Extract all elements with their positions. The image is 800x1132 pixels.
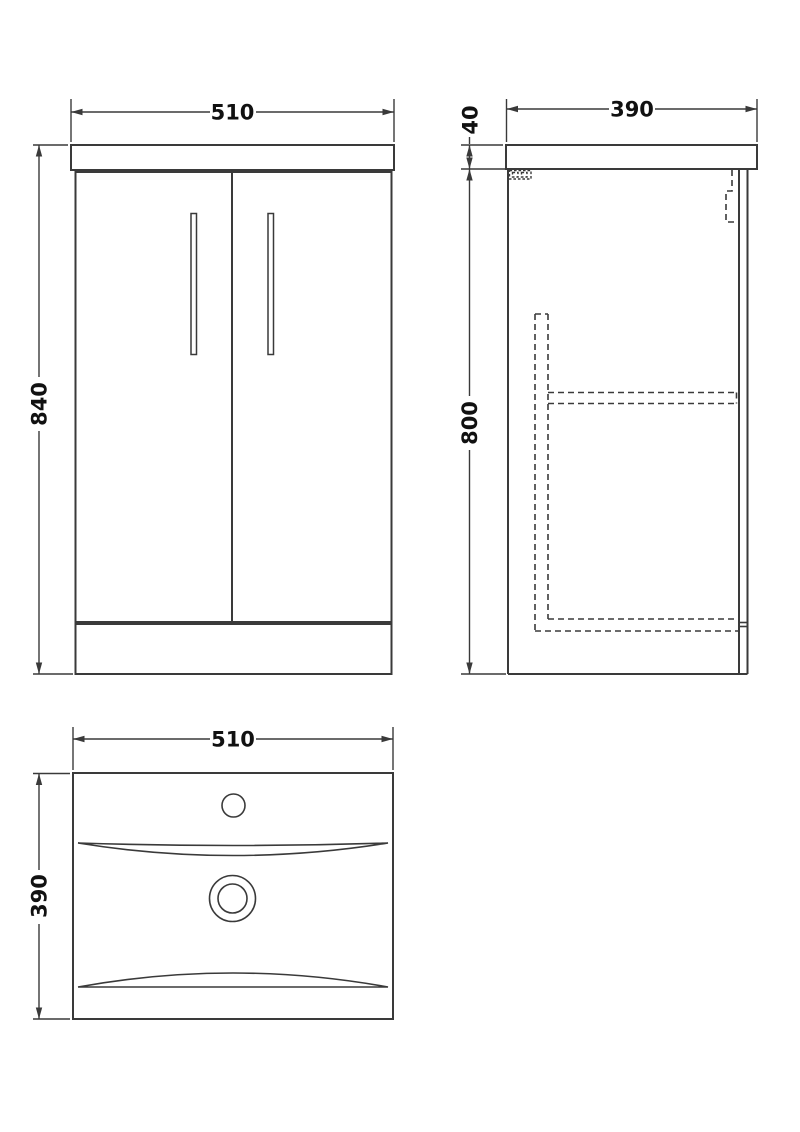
base-panel-dashed — [535, 619, 739, 631]
plan-width-label: 510 — [211, 728, 255, 752]
hinge-plate-detail — [513, 173, 519, 178]
front-right-door-handle — [268, 214, 274, 355]
side-depth-dimension: 390 — [507, 98, 758, 142]
side-view: 390 40 800 — [458, 98, 757, 674]
tap-hole — [222, 794, 245, 817]
plan-depth-dimension: 390 — [28, 774, 70, 1020]
front-view: 510 840 — [28, 99, 394, 674]
side-depth-label: 390 — [610, 98, 654, 122]
basin-front-curve — [78, 973, 388, 987]
basin-back-curve — [78, 843, 388, 856]
plan-depth-label: 390 — [28, 874, 52, 918]
drawing-canvas: 510 840 — [0, 0, 800, 1132]
front-width-dimension: 510 — [71, 99, 394, 142]
front-width-label: 510 — [211, 101, 255, 125]
waste-drain-inner — [218, 884, 247, 913]
side-height-label: 800 — [458, 401, 482, 445]
wall-bracket-dashed — [726, 170, 739, 222]
front-left-door-handle — [191, 214, 197, 355]
plan-width-dimension: 510 — [73, 727, 393, 770]
vanity-technical-drawing: 510 840 — [0, 0, 800, 1132]
side-worktop-label: 40 — [459, 105, 483, 134]
side-worktop — [506, 145, 757, 169]
waste-drain-outer — [210, 876, 256, 922]
side-height-dimension: 800 — [458, 169, 506, 674]
front-worktop — [71, 145, 394, 170]
front-plinth — [76, 624, 392, 674]
side-worktop-dimension: 40 — [459, 105, 505, 169]
internal-pipe-dashed — [535, 314, 548, 631]
plan-view: 510 390 — [28, 727, 393, 1019]
front-height-label: 840 — [28, 382, 52, 426]
hinge-plate-detail — [522, 173, 528, 178]
front-door-panels — [76, 172, 392, 622]
hinge-plate-outline — [510, 171, 532, 180]
internal-shelf-dashed — [548, 393, 737, 404]
front-height-dimension: 840 — [28, 145, 73, 674]
basin-outline — [73, 773, 393, 1019]
hinge-plate-dashed — [510, 171, 532, 180]
